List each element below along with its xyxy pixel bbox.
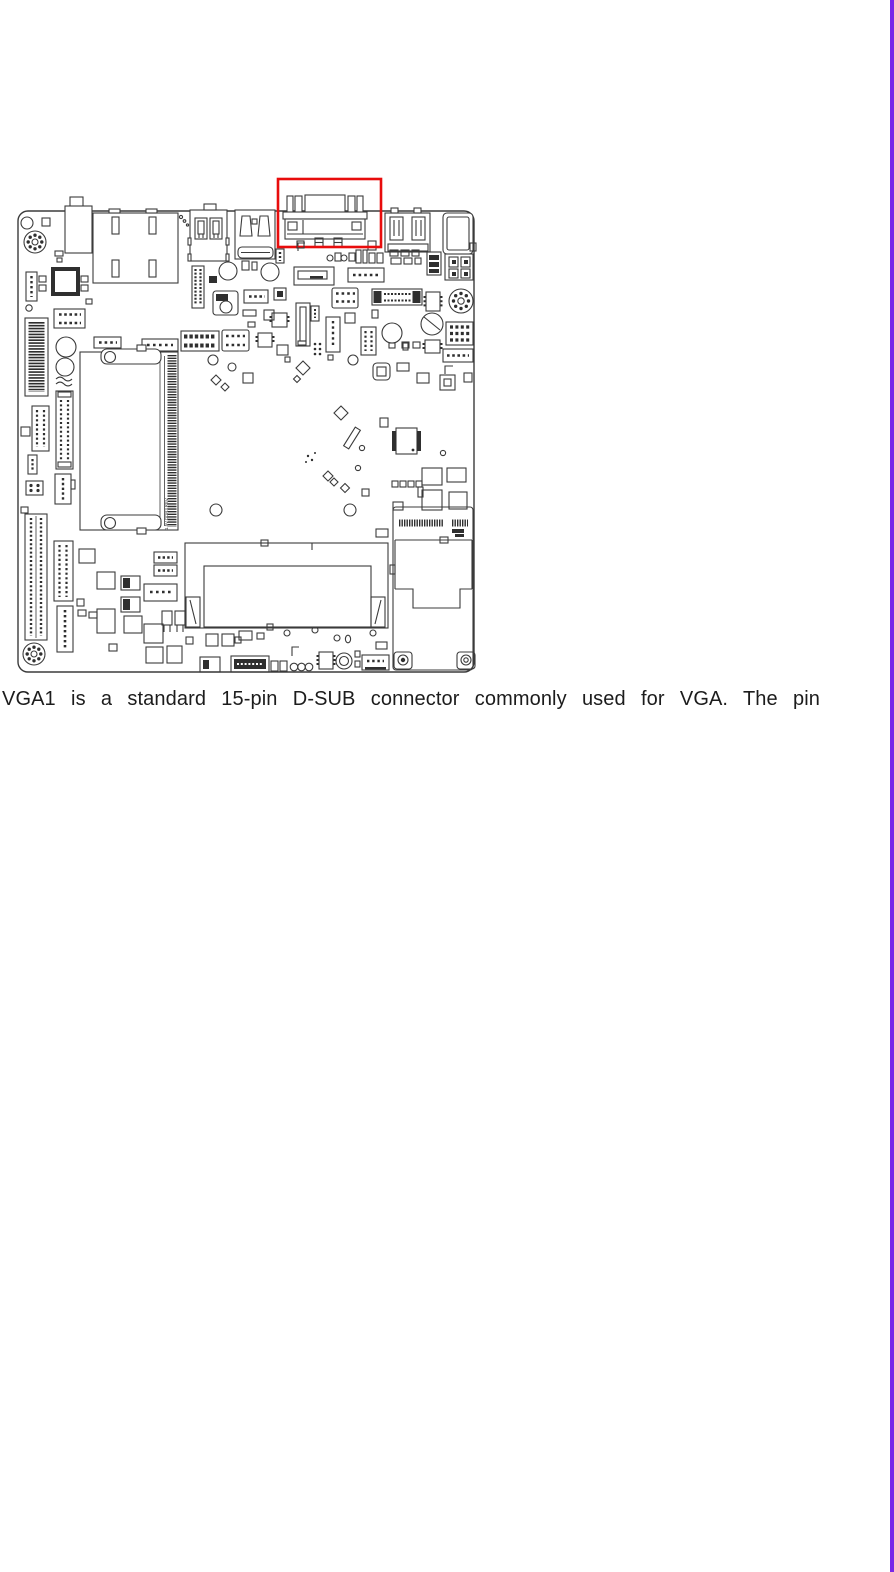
usb-double-stack-right bbox=[385, 208, 430, 252]
usb-double-stack-left bbox=[188, 204, 229, 261]
lan-connector bbox=[93, 209, 178, 283]
audio-jack bbox=[65, 197, 92, 253]
manual-page: 1.5V DDR3 REV bbox=[0, 0, 894, 1572]
usb-hdmi-stack bbox=[235, 210, 275, 259]
pcb-outline bbox=[18, 211, 474, 672]
caption-text: VGA1 is a standard 15-pin D-SUB connecto… bbox=[2, 686, 820, 712]
ddr3-label: 1.5V DDR3 REV bbox=[164, 498, 169, 530]
rtc-battery bbox=[213, 291, 238, 315]
dc-power-jack bbox=[443, 213, 476, 254]
dark-power-connector bbox=[427, 252, 441, 275]
page-edge-stripe bbox=[890, 0, 894, 1572]
sata-connector bbox=[294, 267, 334, 285]
motherboard-figure: 1.5V DDR3 REV bbox=[0, 0, 894, 700]
